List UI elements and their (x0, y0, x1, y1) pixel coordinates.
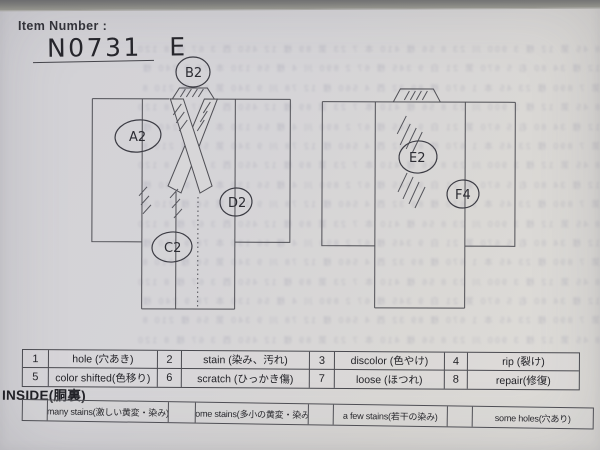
legend-num: 4 (445, 353, 468, 371)
inside-checkbox-cell (23, 400, 48, 420)
marker-C2-label: C2 (164, 241, 181, 256)
marker-F4: F4 (446, 179, 480, 210)
damage-legend-table: 1 hole (穴あき) 2 stain (染み、汚れ) 3 discolor … (22, 349, 580, 390)
inside-option-label: many stains(激しい黄変・染み) (48, 400, 169, 422)
marker-D2-label: D2 (228, 196, 246, 211)
inside-checkbox-cell (169, 402, 196, 422)
inside-option-label: a few stains(若干の染み) (334, 405, 448, 427)
legend-label: hole (穴あき) (49, 350, 158, 369)
legend-label: discolor (色やけ) (335, 352, 445, 371)
marker-A2-label: A2 (129, 130, 146, 145)
legend-num: 8 (445, 371, 468, 389)
inside-option-label: some holes(穴あり) (473, 407, 593, 429)
inside-checkbox-cell (448, 406, 473, 426)
photo-of-document: { "header": { "item_label": "Item Number… (0, 0, 600, 450)
legend-num: 7 (310, 370, 335, 388)
legend-num: 6 (158, 369, 182, 387)
legend-num: 3 (310, 352, 335, 370)
legend-label: rip (裂け) (468, 353, 579, 372)
marker-B2: B2 (176, 57, 210, 87)
marker-E2: E2 (397, 139, 438, 175)
back-kimono-outline (322, 89, 516, 309)
marker-B2-label: B2 (185, 66, 202, 81)
legend-num: 1 (23, 350, 49, 368)
marker-F4-label: F4 (455, 188, 471, 203)
hatch-back-lower (398, 173, 425, 208)
legend-num: 2 (158, 351, 182, 369)
hatch-back-upper (397, 116, 422, 153)
marker-C2: C2 (151, 230, 193, 263)
inside-option-label: some stains(多小の黄変・染み) (196, 403, 309, 425)
legend-label: stain (染み、汚れ) (182, 351, 310, 370)
inside-checkbox-cell (309, 404, 334, 424)
legend-label: scratch (ひっかき傷) (182, 369, 310, 388)
paper-sheet: 8 45 第 12 様 3 900 川 23 8 56 様 410 本 7 23… (0, 0, 600, 450)
hatch-left-body (139, 187, 151, 214)
marker-E2-label: E2 (409, 151, 426, 166)
front-kimono-outline (92, 88, 291, 310)
legend-label: loose (ほつれ) (335, 370, 445, 389)
legend-label: repair(修復) (468, 371, 579, 390)
marker-A2: A2 (113, 117, 163, 154)
marker-D2: D2 (219, 186, 254, 217)
